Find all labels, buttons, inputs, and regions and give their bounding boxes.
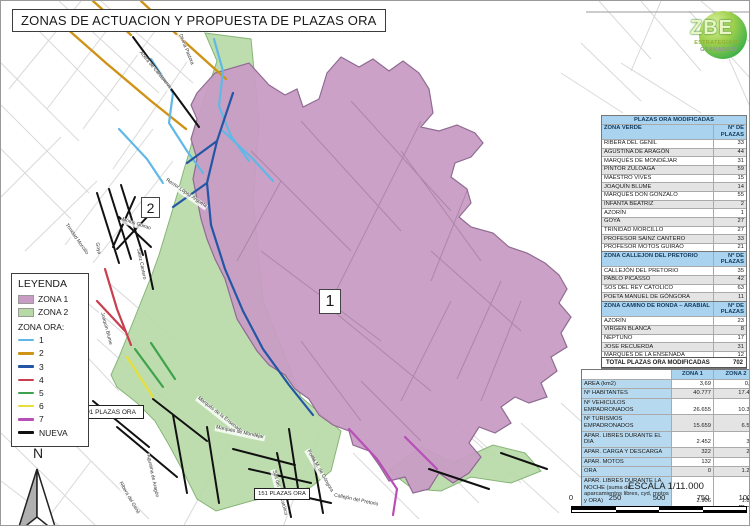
map-sheet: Acera de CanasterosDivina PastoraRector … [0,0,750,526]
table-row: JOSE RECUERDA31 [602,343,746,352]
table-cell: AGUSTINA DE ARAGÓN [602,149,714,157]
table-cell: 11 [714,293,746,301]
table-cell: 0 [672,467,714,476]
grand-total-bar: TOTAL PLAZAS ORA MODIFICADAS 702 [601,357,747,368]
scale-bar-segment [703,510,747,513]
table-cell: VIRGEN BLANCA [602,326,714,334]
table-row: CALLEJÓN DEL PRETORIO35 [602,267,746,276]
table-row: ZONA 1ZONA 2 [582,370,750,380]
zone1-number-label: 1 [319,289,341,314]
ora-line-swatch [18,431,34,434]
table-row: APAR. LIBRES DURANTE EL DIA2.452324 [582,432,750,448]
table-cell: APAR. MOTOS [582,458,672,467]
table-cell: MARQUÉS DE MONDÉJAR [602,157,714,165]
table-cell: NEPTUNO [602,335,714,343]
table-cell: AZORÍN [602,317,714,325]
table-cell: PROFESOR SAINZ CANTERO [602,235,714,243]
table-row: NEPTUNO17 [602,335,746,344]
table-cell: 14 [714,183,746,191]
table-cell: 324 [714,432,750,447]
scale-tick-label: 250 [609,493,622,502]
ora-line-label: 1 [39,335,44,345]
zona2-swatch [18,308,34,317]
table-cell: 10.307 [714,399,750,414]
table-cell: Nº HABITANTES [582,389,672,398]
ora-line-swatch [18,365,34,368]
table-row: APAR. MOTOS13250 [582,458,750,468]
table-cell: CALLEJÓN DEL PRETORIO [602,267,714,275]
table-row: MARQUÉS DON GONZALO55 [602,192,746,201]
table-cell: 42 [714,276,746,284]
legend-ora-item: 1 [18,335,82,345]
legend-ora-item: 2 [18,348,82,358]
table-cell: ZONA 1 [672,370,714,379]
table-cell: 31 [714,343,746,351]
table-cell: SOS DEL REY CATOLICO [602,285,714,293]
zona1-label: ZONA 1 [38,294,68,304]
grand-total-value: 702 [718,360,746,366]
table-cell: 8 [714,326,746,334]
table-cell: PINTOR ZULOAGA [602,166,714,174]
zbe-logo: ZBE ESTRATEGIA20 GRANADA25 [663,7,749,61]
table-cell: 201 [714,448,750,457]
scale-bar-segment [659,510,703,513]
table-cell: ZONA 2 [714,370,750,379]
ora-line-swatch [18,379,34,382]
table-cell: APAR. CARGA Y DESCARGA [582,448,672,457]
table-row: Nº TURISMOS EMPADRONADOS15.6596.534 [582,415,750,431]
table-row: ZONA CALLEJON DEL PRETORIONº DE PLAZAS [602,252,746,267]
table-cell: ORA [582,467,672,476]
ora-line-swatch [18,339,34,342]
table-row: PABLO PICASSO42 [602,276,746,285]
table-cell: MARQUÉS DON GONZALO [602,192,714,200]
table-cell: GOYA [602,218,714,226]
zona1-swatch [18,295,34,304]
legend-ora-item: 7 [18,414,82,424]
scale-tick-label: 0 [569,493,573,502]
table-cell: Nº DE PLAZAS [714,252,746,266]
north-label: N [33,445,43,461]
table-row: ORA01.270 [582,467,750,477]
ora-line-label: 3 [39,362,44,372]
legend-ora-item: NUEVA [18,428,82,438]
table-cell: 2.452 [672,432,714,447]
table-cell: 50 [714,458,750,467]
legend-ora-list: 1234567NUEVA [18,335,82,437]
zone2-number-label: 2 [141,197,160,218]
table-cell: 0,81 [714,380,750,389]
table-row: INFANTA BEATRIZ2 [602,201,746,210]
zona2-label: ZONA 2 [38,307,68,317]
logo-subtitle-1: ESTRATEGIA20 [694,40,739,46]
table-cell: 3,69 [672,380,714,389]
table-row: GOYA27 [602,218,746,227]
table-cell: PABLO PICASSO [602,276,714,284]
table-cell: 31 [714,157,746,165]
ora-line-label: 6 [39,401,44,411]
table-cell: 15.659 [672,415,714,430]
table-cell: 63 [714,285,746,293]
table-row: JOAQUÍN BLUME14 [602,183,746,192]
table-row: PROFESOR SAINZ CANTERO33 [602,235,746,244]
table-cell: 44 [714,149,746,157]
table-cell: 40.777 [672,389,714,398]
legend: LEYENDA ZONA 1 ZONA 2 ZONA ORA: 1234567N… [11,273,89,447]
table-row: Nº VEHICULOS EMPADRONADOS26.65510.307 [582,399,750,415]
table-row: AGUSTINA DE ARAGÓN44 [602,149,746,158]
table-row: MARQUÉS DE MONDÉJAR31 [602,157,746,166]
table-row: ZONA VERDENº DE PLAZAS [602,125,746,140]
table-cell: ZONA CALLEJON DEL PRETORIO [602,252,714,266]
table-cell: 132 [672,458,714,467]
table-cell: Nº TURISMOS EMPADRONADOS [582,415,672,430]
table-cell: 15 [714,175,746,183]
map-title: ZONAS DE ACTUACION Y PROPUESTA DE PLAZAS… [12,9,386,32]
logo-text: ZBE [690,17,733,40]
grand-total-label: TOTAL PLAZAS ORA MODIFICADAS [602,360,718,366]
logo-subtitle-2: GRANADA25 [700,47,737,53]
ora-line-swatch [18,405,34,408]
ora-line-swatch [18,352,34,355]
table-cell: 17.468 [714,389,750,398]
table-cell [582,370,672,379]
scale-tick-labels: 02505007501000 m [571,493,750,503]
table-row: SOS DEL REY CATOLICO63 [602,285,746,294]
legend-zona1: ZONA 1 [18,294,82,304]
table-cell: TRINIDAD MORCILLO [602,227,714,235]
scale-text: ESCALA 1/11.000 [596,481,736,492]
scale-bar-segment [616,510,660,513]
street-label: Goya [93,241,101,256]
legend-title: LEYENDA [18,278,82,290]
table-row: AREA (km2)3,690,81 [582,380,750,390]
table-cell: 27 [714,218,746,226]
table-row: ZONA CAMINO DE RONDA – ARABIALNº DE PLAZ… [602,302,746,317]
scale-bar-segment [572,510,616,513]
scale-tick-label: 750 [697,493,710,502]
ora-line-swatch [18,418,34,421]
table-cell: 35 [714,267,746,275]
table-cell: 2 [714,201,746,209]
table-cell: AZORÍN [602,209,714,217]
table-row: TRINIDAD MORCILLO27 [602,227,746,236]
table-row: VIRGEN BLANCA8 [602,326,746,335]
table-row: APAR. CARGA Y DESCARGA322201 [582,448,750,458]
table-cell: RIBERA DEL GENIL [602,140,714,148]
table-row: AZORÍN1 [602,209,746,218]
table-cell: 33 [714,235,746,243]
legend-ora-item: 6 [18,401,82,411]
scale-bar [571,506,747,513]
table-row: MAESTRO VIVES15 [602,175,746,184]
table-cell: 27 [714,227,746,235]
table-row: AZORÍN23 [602,317,746,326]
ora-line-label: 4 [39,375,44,385]
table-cell: Nº DE PLAZAS [714,125,746,139]
table-row: Nº HABITANTES40.77717.468 [582,389,750,399]
table-row: PLAZAS ORA MODIFICADAS [602,116,746,125]
table-cell: 17 [714,335,746,343]
table-cell: AREA (km2) [582,380,672,389]
table-cell: PLAZAS ORA MODIFICADAS [632,116,716,124]
table-cell: 55 [714,192,746,200]
table-row: PINTOR ZULOAGA59 [602,166,746,175]
ora-line-label: 7 [39,414,44,424]
table-cell: 33 [714,140,746,148]
table-cell: 1.270 [714,467,750,476]
table-cell: Nº DE PLAZAS [714,302,746,316]
plaza-badge-151: 151 PLAZAS ORA [254,488,310,500]
table-cell: 59 [714,166,746,174]
table-cell: ZONA VERDE [602,125,714,139]
legend-ora-item: 3 [18,362,82,372]
table-cell: 322 [672,448,714,457]
legend-ora-title: ZONA ORA: [18,322,82,332]
table-cell: INFANTA BEATRIZ [602,201,714,209]
ora-line-4 [97,269,131,345]
table-row: RIBERA DEL GENIL33 [602,140,746,149]
legend-zona2: ZONA 2 [18,307,82,317]
table-cell: ZONA CAMINO DE RONDA – ARABIAL [602,302,714,316]
ora-line-label: 5 [39,388,44,398]
table-cell: JOSE RECUERDA [602,343,714,351]
table-cell: 23 [714,317,746,325]
legend-ora-item: 5 [18,388,82,398]
scale-tick-label: 500 [653,493,666,502]
table-cell: MAESTRO VIVES [602,175,714,183]
ora-line-label: NUEVA [39,428,68,438]
table-cell: 26.655 [672,399,714,414]
table-cell: Nº VEHICULOS EMPADRONADOS [582,399,672,414]
table-cell: POETA MANUEL DE GÓNGORA [602,293,714,301]
ora-line-swatch [18,392,34,395]
table-cell: 1 [714,209,746,217]
table-cell: APAR. LIBRES DURANTE EL DIA [582,432,672,447]
legend-ora-item: 4 [18,375,82,385]
table-cell: 6.534 [714,415,750,430]
ora-line-label: 2 [39,348,44,358]
table-cell: JOAQUÍN BLUME [602,183,714,191]
north-indicator: N [13,441,69,526]
